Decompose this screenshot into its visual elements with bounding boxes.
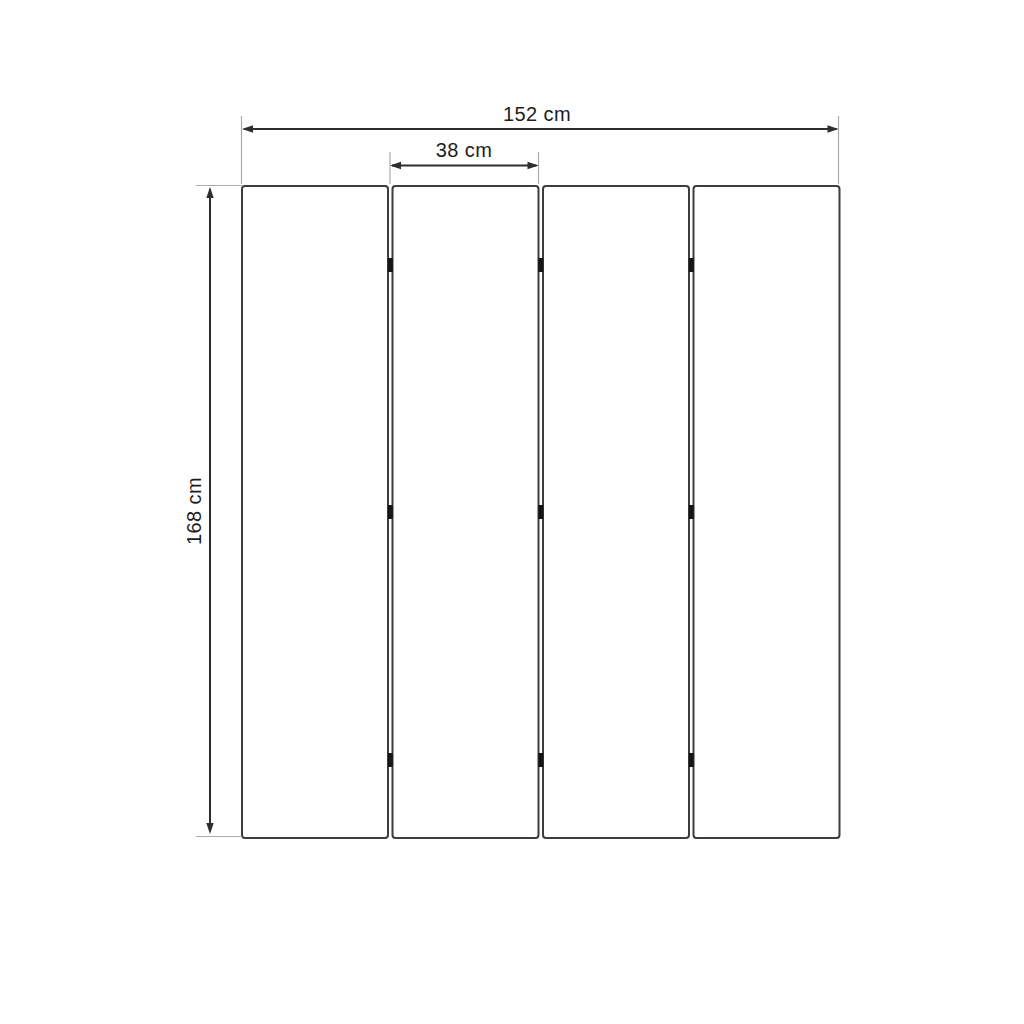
dimension-height: 168 cm — [183, 186, 242, 837]
hinge-mark — [388, 753, 393, 767]
hinge-mark — [689, 258, 694, 272]
panel-4 — [694, 186, 840, 838]
panel-width-label: 38 cm — [436, 139, 492, 161]
drawing-canvas: 152 cm 38 cm 168 cm — [0, 0, 1024, 1024]
arrow-right-icon — [528, 162, 539, 169]
hinge-mark — [689, 753, 694, 767]
hinge-mark — [538, 258, 543, 272]
hinge-mark — [388, 505, 393, 519]
hinge-mark — [689, 505, 694, 519]
arrow-left-icon — [390, 162, 401, 169]
arrow-down-icon — [206, 823, 213, 834]
arrow-up-icon — [206, 187, 213, 198]
arrow-left-icon — [242, 125, 253, 132]
total-width-label: 152 cm — [503, 103, 571, 125]
panel-1 — [242, 186, 388, 838]
folding-screen-diagram: 152 cm 38 cm 168 cm — [0, 0, 1024, 1024]
hinge-mark — [538, 753, 543, 767]
hinge-mark — [538, 505, 543, 519]
panel-3 — [543, 186, 689, 838]
hinge-mark — [388, 258, 393, 272]
panel-2 — [393, 186, 539, 838]
dimension-total-width: 152 cm — [242, 103, 839, 184]
arrow-right-icon — [828, 125, 839, 132]
height-label: 168 cm — [183, 477, 205, 545]
dimension-panel-width: 38 cm — [390, 139, 539, 184]
